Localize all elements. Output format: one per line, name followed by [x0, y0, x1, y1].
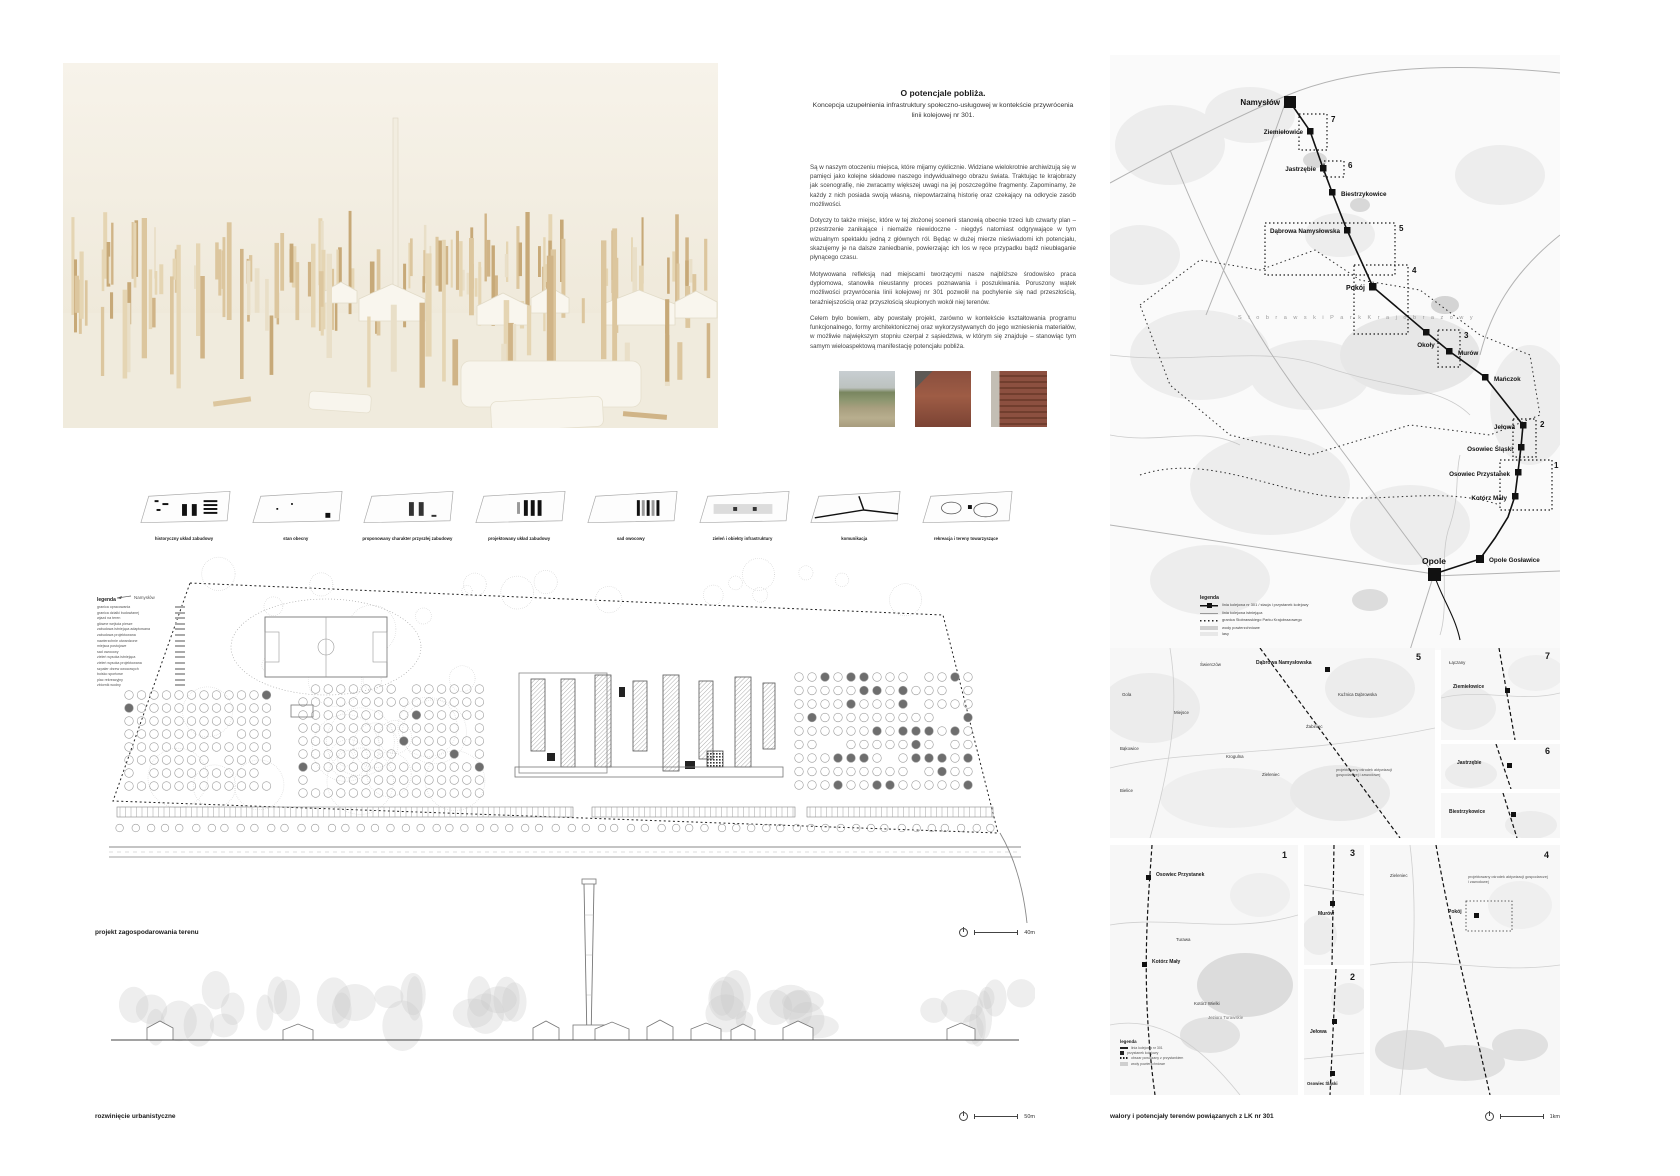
project-subtitle: Koncepcja uzupełnienia infrastruktury sp… — [810, 101, 1076, 121]
elevation-caption: rozwinięcie urbanistyczne — [95, 1113, 176, 1120]
legend-title: legenda — [1200, 595, 1316, 601]
park-label: S t o b r a w s k i P a r k K r a j o b … — [1238, 315, 1475, 321]
svg-text:Biestrzykowice: Biestrzykowice — [1341, 191, 1387, 198]
detail-map-area-2: 2 Jełowa Osowiec Śląski — [1304, 969, 1364, 1095]
site-plan-caption-row: projekt zagospodarowania terenu 40m — [95, 928, 1035, 937]
north-icon — [959, 928, 968, 937]
site-plan-render: Namysłów — [95, 555, 1035, 925]
building-complex — [291, 673, 783, 777]
detail-map-area-3: 3 Murów — [1304, 845, 1364, 965]
svg-text:6: 6 — [1348, 161, 1353, 170]
elevation-houses — [147, 1020, 975, 1040]
station-marker — [1507, 763, 1512, 768]
detail-map-area-1: 1 Osowiec Przystanek Turawa Kotórz Mały … — [1110, 845, 1298, 1095]
svg-text:7: 7 — [1331, 115, 1336, 124]
analysis-diagram-strip: historyczny układ zabudowy stan obecny p… — [135, 488, 1015, 541]
station-marker — [1330, 901, 1335, 906]
detail-map-biestrzykowice: Biestrzykowice — [1441, 793, 1560, 838]
water-symbol — [1200, 626, 1218, 630]
svg-text:Opole Gosławice: Opole Gosławice — [1489, 557, 1540, 564]
elevation-trees — [119, 970, 1035, 1050]
station-marker — [1511, 812, 1516, 817]
detail-maps-row-b: 1 Osowiec Przystanek Turawa Kotórz Mały … — [1110, 845, 1560, 1095]
detail-maps-caption: walory i potencjały terenów powiązanych … — [1110, 1113, 1274, 1120]
elevation-caption-row: rozwinięcie urbanistyczne 50m — [95, 1112, 1035, 1121]
mini-legend: legenda linia kolejowa nr 301 przystanek… — [1120, 1039, 1210, 1067]
sports-field — [231, 599, 421, 695]
photo-brick-building — [915, 371, 971, 427]
north-icon — [1485, 1112, 1494, 1121]
north-icon — [959, 1112, 968, 1121]
site-plan: Namysłów — [95, 555, 1035, 925]
intro-paragraphs: Są w naszym otoczeniu miejsca, które mij… — [810, 163, 1076, 351]
svg-text:Okoły: Okoły — [1417, 342, 1435, 349]
svg-text:2: 2 — [1540, 420, 1545, 429]
site-plan-legend: legenda granica opracowania granica dzia… — [97, 597, 185, 689]
svg-text:3: 3 — [1464, 331, 1469, 340]
station-marker — [1146, 875, 1151, 880]
rail-symbol — [1200, 603, 1218, 608]
scale-bar — [974, 932, 1018, 933]
diagram-historic: historyczny układ zabudowy — [135, 488, 233, 541]
svg-text:Opole: Opole — [1422, 556, 1446, 566]
site-plan-caption: projekt zagospodarowania terenu — [95, 929, 199, 936]
route-map-legend: legenda linia kolejowa nr 301 / stacja i… — [1200, 595, 1316, 639]
model-photo-render — [63, 63, 718, 428]
svg-text:Jełowa: Jełowa — [1494, 424, 1515, 431]
railway-south — [1434, 574, 1460, 640]
model-mast — [393, 118, 398, 308]
parking-bands — [117, 807, 993, 817]
station-label: Dąbrowa Namysłowska — [1256, 660, 1312, 666]
orchard-block-mid — [299, 685, 484, 798]
detail-map-area-7: 7 Łączany Ziemiełowice — [1441, 648, 1560, 740]
route-map-render: S t o b r a w s k i P a r k K r a j o b … — [1110, 55, 1560, 650]
existing-trees-top — [202, 557, 922, 624]
project-title: O potencjale pobliża. — [810, 88, 1076, 98]
svg-text:Murów: Murów — [1458, 350, 1478, 357]
model-photo — [63, 63, 718, 428]
planning-note: projektowany ośrodek aktywizacji gospoda… — [1336, 768, 1410, 777]
detail-map-area-6: 6 Jastrzębie — [1441, 744, 1560, 789]
paragraph: Dotyczy to także miejsc, które w tej zło… — [810, 216, 1076, 262]
photo-overgrown-railway — [839, 371, 895, 427]
boundary-symbol — [1200, 618, 1218, 623]
intro-text-block: O potencjale pobliża. Koncepcja uzupełni… — [810, 88, 1076, 427]
svg-text:4: 4 — [1412, 266, 1417, 275]
svg-text:Osowiec Śląski: Osowiec Śląski — [1467, 444, 1513, 453]
diagram-proposed-character: proponowany charakter przyszłej zabudowy — [358, 488, 456, 541]
svg-text:Osowiec Przystanek: Osowiec Przystanek — [1449, 471, 1510, 478]
station-marker — [1474, 913, 1479, 918]
station-marker — [1325, 667, 1330, 672]
svg-text:Mańczok: Mańczok — [1494, 376, 1521, 383]
station-marker — [1332, 1019, 1337, 1024]
detail-maps-scale: 1km — [1485, 1112, 1560, 1121]
area-number: 5 — [1416, 652, 1421, 662]
svg-text:1: 1 — [1554, 461, 1559, 470]
diagram-designed-layout: projektowany układ zabudowy — [470, 488, 568, 541]
detail-maps-caption-row: walory i potencjały terenów powiązanych … — [1110, 1112, 1560, 1121]
paragraph: Motywowana refleksją nad miejscami tworz… — [810, 270, 1076, 307]
legend-title: legenda — [97, 597, 185, 603]
svg-text:Ziemiełowice: Ziemiełowice — [1264, 129, 1304, 136]
svg-text:Namysłów: Namysłów — [1240, 98, 1280, 107]
elevation-scale: 50m — [959, 1112, 1035, 1121]
scale-bar — [974, 1116, 1018, 1117]
photo-brick-wall — [991, 371, 1047, 427]
planning-note: projektowany ośrodek aktywizacji gospoda… — [1468, 875, 1548, 884]
presentation-board: O potencjale pobliża. Koncepcja uzupełni… — [0, 0, 1680, 1176]
diagram-circulation: komunikacja — [805, 488, 903, 541]
station-marker — [1330, 1071, 1335, 1076]
svg-text:Kotórz Mały: Kotórz Mały — [1471, 495, 1507, 502]
station-marker — [1505, 688, 1510, 693]
svg-text:5: 5 — [1399, 224, 1404, 233]
paragraph: Są w naszym otoczeniu miejsca, które mij… — [810, 163, 1076, 209]
station-marker — [1142, 962, 1147, 967]
site-plan-scale: 40m — [959, 928, 1035, 937]
roads — [109, 833, 1027, 923]
paragraph: Celem było bowiem, aby powstały projekt,… — [810, 314, 1076, 351]
svg-text:Dąbrowa Namysłowska: Dąbrowa Namysłowska — [1270, 228, 1340, 235]
diagram-recreation: rekreacja i tereny towarzyszące — [917, 488, 1015, 541]
forest-areas — [1110, 87, 1560, 615]
svg-text:Jastrzębie: Jastrzębie — [1285, 166, 1316, 173]
forest-symbol — [1200, 632, 1218, 636]
detail-map-area-4: 4 Zieleniec Pokój projektowany ośrodek a… — [1370, 845, 1560, 1095]
orchard-block-east — [795, 673, 973, 790]
detail-maps-row-a: 5 Dąbrowa Namysłowska Świerczów Gola Mie… — [1110, 648, 1560, 838]
diagram-orchard: sad owocowy — [582, 488, 680, 541]
diagram-current: stan obecny — [247, 488, 345, 541]
railway-route-map: S t o b r a w s k i P a r k K r a j o b … — [1110, 55, 1560, 650]
scale-bar — [1500, 1116, 1544, 1117]
svg-text:Pokój: Pokój — [1346, 285, 1365, 292]
parking-ticks — [120, 807, 992, 817]
detail-map-area-5: 5 Dąbrowa Namysłowska Świerczów Gola Mie… — [1110, 648, 1435, 838]
reference-photos — [810, 371, 1076, 427]
diagram-greenery: zieleń i obiekty infrastruktury — [694, 488, 792, 541]
line-symbol — [1200, 611, 1218, 616]
